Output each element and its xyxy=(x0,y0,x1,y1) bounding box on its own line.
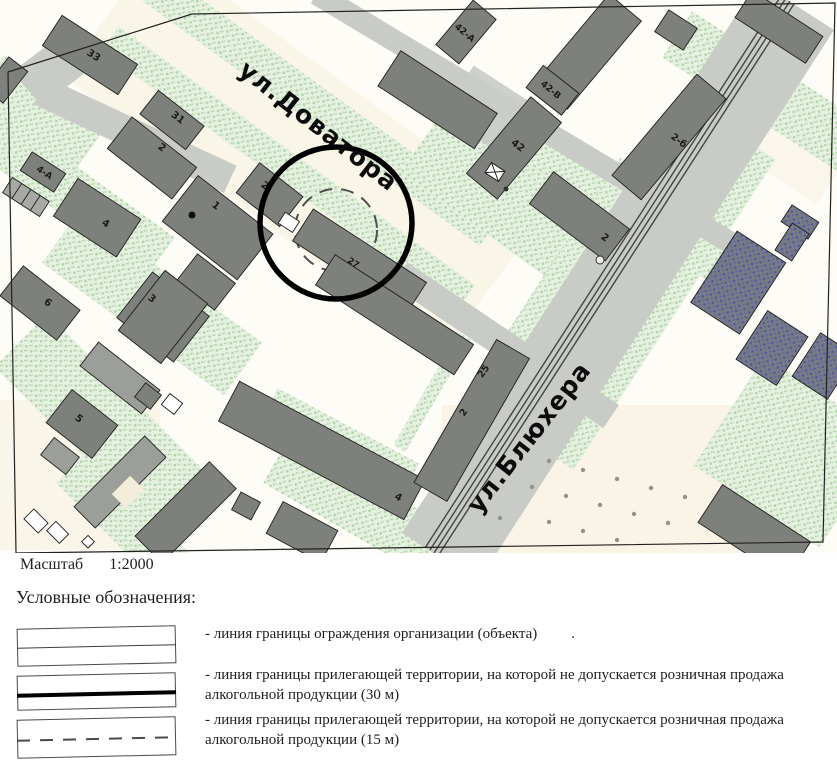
building-nub xyxy=(596,256,604,264)
dashed-line-sample xyxy=(17,736,176,742)
fence-line-sample xyxy=(17,644,176,649)
legend-item-text: - линия границы ограждения организации (… xyxy=(205,625,830,645)
scale-value: 1:2000 xyxy=(109,556,153,573)
legend-symbol-30m-line xyxy=(17,672,177,711)
legend-title: Условные обозначения: xyxy=(16,587,196,608)
scale-label: Масштаб xyxy=(20,556,83,573)
thick-line-sample xyxy=(17,690,176,698)
legend-item-label: - линия границы прилегающей территории, … xyxy=(205,712,784,748)
legend-item-text: - линия границы прилегающей территории, … xyxy=(205,666,830,705)
legend-item-label: - линия границы прилегающей территории, … xyxy=(205,667,784,703)
map-scale: Масштаб1:2000 xyxy=(20,556,154,574)
legend-item-label: - линия границы ограждения организации (… xyxy=(205,626,537,642)
map-svg: 33 31 2 4-А 4 1 2 27 3 6 5 4 25 2 42-А 4… xyxy=(0,0,837,555)
city-map: 33 31 2 4-А 4 1 2 27 3 6 5 4 25 2 42-А 4… xyxy=(0,0,837,555)
legend-symbol-fence-line xyxy=(17,625,177,667)
point-marker xyxy=(189,212,196,219)
legend-item-text: - линия границы прилегающей территории, … xyxy=(205,711,830,750)
point-marker xyxy=(504,187,509,192)
scanned-map-page: 33 31 2 4-А 4 1 2 27 3 6 5 4 25 2 42-А 4… xyxy=(0,0,837,763)
legend-section: Масштаб1:2000 Условные обозначения: - ли… xyxy=(0,553,837,763)
legend-item-suffix: . xyxy=(571,626,575,642)
legend-symbol-15m-line xyxy=(17,716,177,759)
